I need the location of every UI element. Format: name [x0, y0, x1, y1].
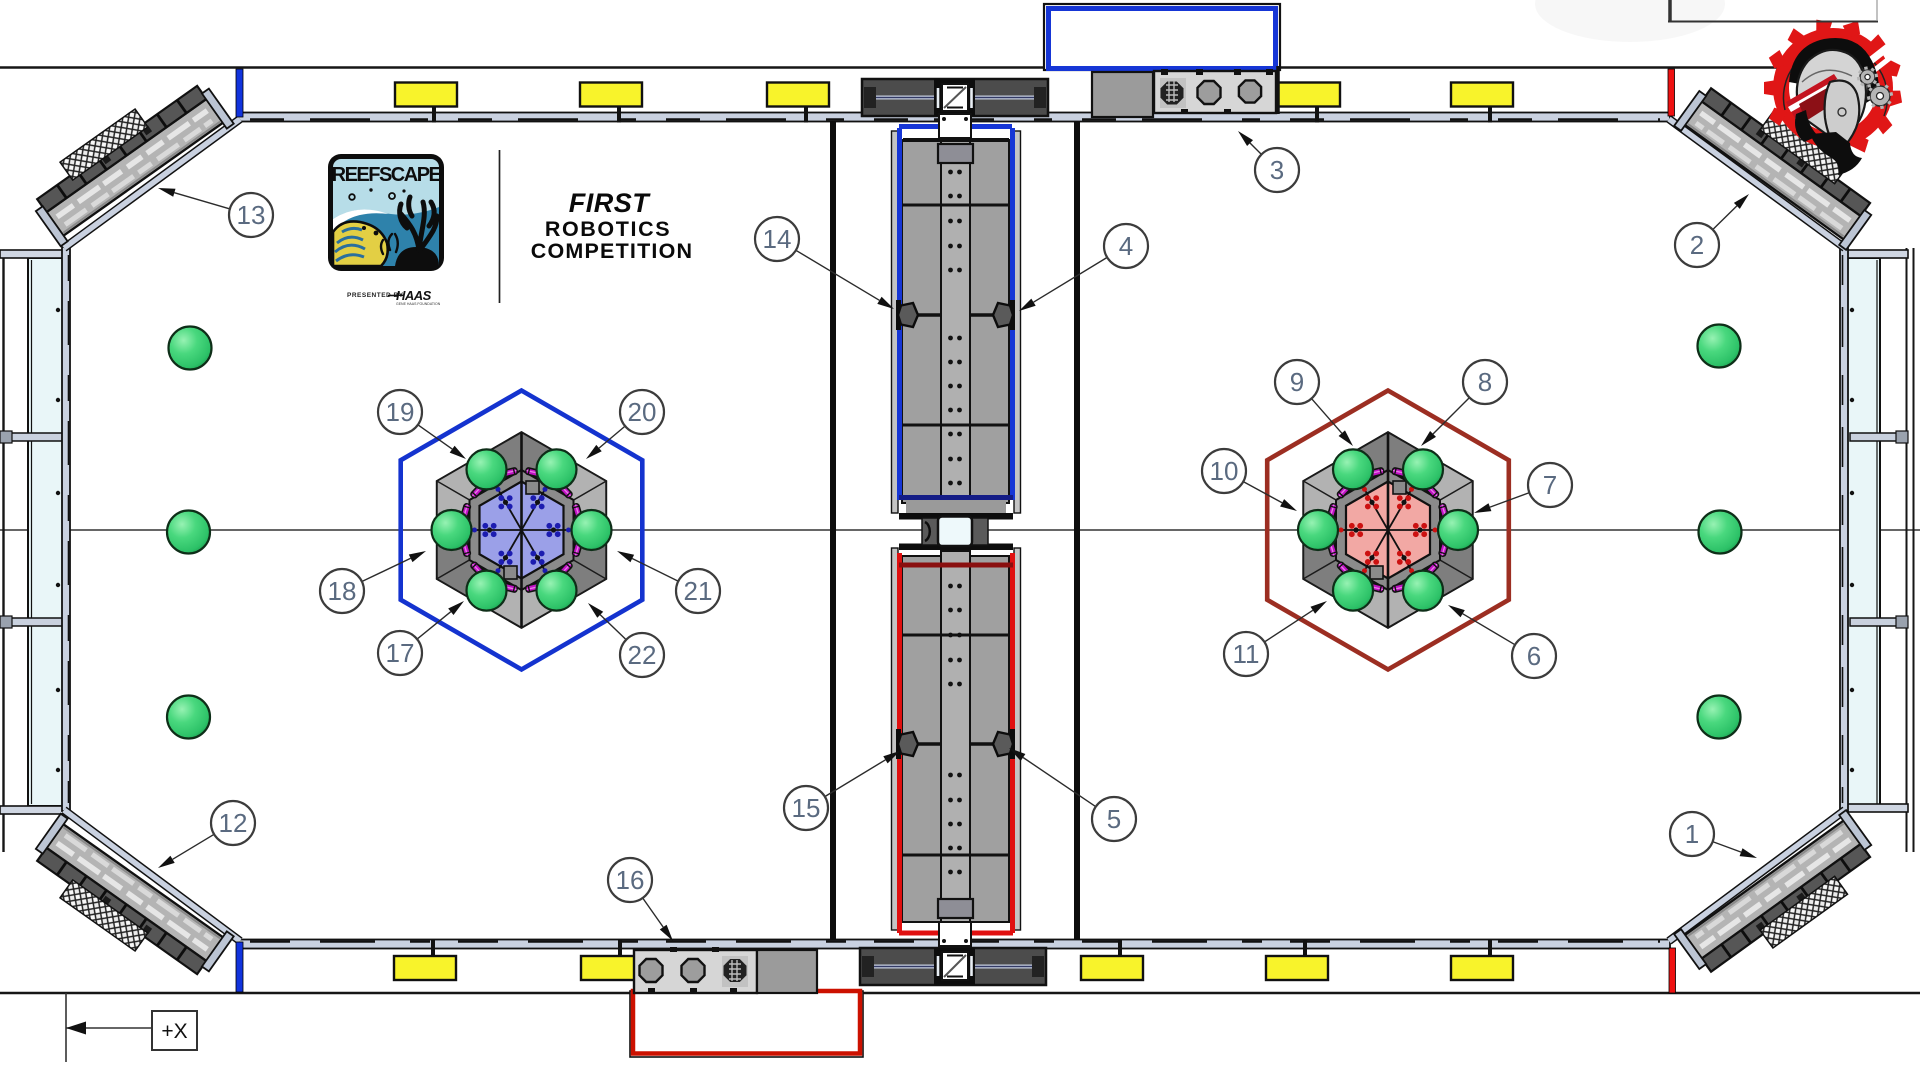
svg-text:1: 1 — [1685, 819, 1699, 849]
svg-text:10: 10 — [1210, 456, 1239, 486]
svg-text:8: 8 — [1478, 367, 1492, 397]
svg-text:16: 16 — [616, 865, 645, 895]
svg-text:REEFSCAPE: REEFSCAPE — [332, 164, 442, 186]
svg-text:3: 3 — [1270, 155, 1284, 185]
svg-text:17: 17 — [386, 638, 415, 668]
svg-text:12: 12 — [219, 808, 248, 838]
svg-text:FIRST: FIRST — [569, 188, 652, 218]
svg-text:13: 13 — [237, 200, 266, 230]
svg-text:+X: +X — [161, 1020, 187, 1043]
svg-text:22: 22 — [628, 640, 657, 670]
svg-text:7: 7 — [1543, 470, 1557, 500]
svg-text:20: 20 — [628, 397, 657, 427]
svg-text:21: 21 — [684, 576, 713, 606]
svg-text:2: 2 — [1690, 230, 1704, 260]
svg-text:GENE HAAS FOUNDATION: GENE HAAS FOUNDATION — [396, 302, 441, 306]
svg-text:4: 4 — [1119, 231, 1133, 261]
svg-text:19: 19 — [386, 397, 415, 427]
svg-text:14: 14 — [763, 224, 792, 254]
svg-text:9: 9 — [1290, 367, 1304, 397]
svg-text:15: 15 — [792, 793, 821, 823]
svg-text:HAAS: HAAS — [396, 288, 432, 303]
svg-text:COMPETITION: COMPETITION — [531, 239, 694, 263]
svg-text:ROBOTICS: ROBOTICS — [545, 217, 671, 241]
svg-text:11: 11 — [1233, 639, 1260, 669]
svg-text:6: 6 — [1527, 641, 1541, 671]
svg-text:5: 5 — [1107, 804, 1121, 834]
svg-text:18: 18 — [328, 576, 357, 606]
